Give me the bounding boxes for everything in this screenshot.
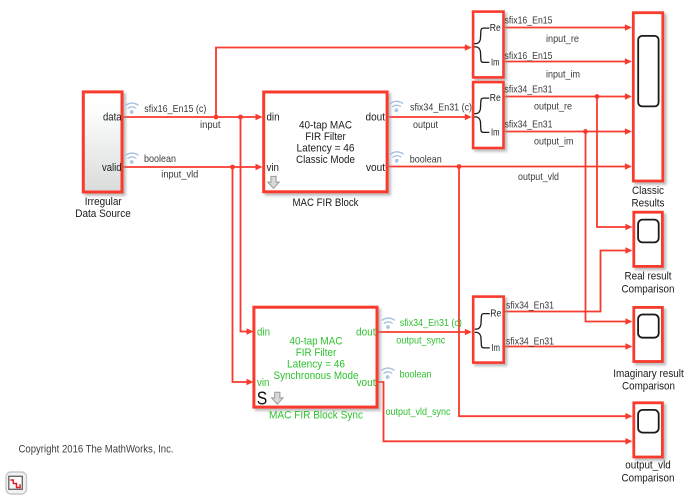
svg-text:output_vld_sync: output_vld_sync: [386, 406, 451, 418]
svg-text:Imaginary result: Imaginary result: [613, 368, 684, 380]
svg-text:input_re: input_re: [546, 33, 579, 45]
svg-text:S: S: [257, 387, 267, 409]
svg-text:Classic Mode: Classic Mode: [296, 154, 355, 166]
svg-text:sfix34_En31 (c): sfix34_En31 (c): [410, 102, 472, 114]
svg-text:Latency = 46: Latency = 46: [297, 143, 355, 155]
svg-text:Re: Re: [490, 93, 501, 104]
svg-text:vout: vout: [357, 377, 376, 389]
svg-text:Im: Im: [492, 343, 501, 354]
svg-text:Synchronous Mode: Synchronous Mode: [274, 370, 359, 382]
svg-text:Im: Im: [491, 127, 500, 138]
svg-text:boolean: boolean: [400, 369, 432, 381]
svg-text:data: data: [103, 112, 122, 124]
svg-text:Im: Im: [491, 58, 500, 69]
svg-text:Comparison: Comparison: [622, 284, 675, 296]
svg-text:dout: dout: [366, 112, 386, 124]
svg-text:sfix16_En15: sfix16_En15: [505, 50, 553, 62]
svg-text:Comparison: Comparison: [622, 473, 675, 485]
svg-text:Results: Results: [632, 198, 665, 210]
svg-text:sfix16_En15: sfix16_En15: [505, 15, 553, 27]
svg-text:output_vld: output_vld: [518, 171, 559, 183]
svg-text:FIR Filter: FIR Filter: [305, 131, 346, 143]
svg-text:Real result: Real result: [625, 271, 672, 283]
svg-text:sfix34_En31: sfix34_En31: [506, 300, 554, 312]
svg-text:output_sync: output_sync: [396, 335, 445, 347]
svg-text:FIR Filter: FIR Filter: [296, 347, 337, 359]
svg-text:vout: vout: [366, 162, 385, 174]
svg-text:MAC FIR Block: MAC FIR Block: [293, 197, 359, 209]
svg-text:40-tap MAC: 40-tap MAC: [299, 120, 352, 132]
svg-text:output_im: output_im: [534, 136, 574, 148]
svg-text:sfix34_En31 (c): sfix34_En31 (c): [400, 317, 462, 329]
svg-text:input_im: input_im: [546, 69, 580, 81]
svg-text:boolean: boolean: [144, 153, 176, 165]
svg-text:Irregular: Irregular: [85, 196, 122, 208]
svg-text:valid: valid: [102, 162, 122, 174]
svg-text:output_re: output_re: [534, 101, 572, 113]
svg-text:Latency = 46: Latency = 46: [287, 359, 345, 371]
svg-text:MAC FIR Block Sync: MAC FIR Block Sync: [269, 410, 363, 422]
svg-text:Classic: Classic: [632, 185, 664, 197]
svg-text:dout: dout: [356, 327, 376, 339]
svg-text:sfix34_En31: sfix34_En31: [505, 119, 553, 131]
svg-text:output_vld: output_vld: [625, 460, 671, 472]
svg-text:output: output: [413, 119, 438, 131]
svg-text:sfix34_En31: sfix34_En31: [506, 336, 554, 348]
svg-text:Re: Re: [490, 308, 501, 319]
svg-text:Copyright 2016 The MathWorks,: Copyright 2016 The MathWorks, Inc.: [19, 444, 174, 456]
svg-text:vin: vin: [257, 377, 270, 389]
svg-text:40-tap MAC: 40-tap MAC: [290, 336, 343, 348]
svg-text:vin: vin: [267, 162, 280, 174]
svg-text:input_vld: input_vld: [161, 169, 198, 181]
svg-text:Re: Re: [490, 23, 501, 34]
svg-text:Data Source: Data Source: [75, 208, 131, 220]
svg-text:din: din: [267, 112, 280, 124]
svg-text:boolean: boolean: [410, 154, 442, 166]
svg-text:sfix16_En15 (c): sfix16_En15 (c): [144, 103, 206, 115]
svg-text:din: din: [257, 327, 270, 339]
svg-text:Comparison: Comparison: [622, 381, 675, 393]
svg-text:sfix34_En31: sfix34_En31: [505, 84, 553, 96]
svg-text:input: input: [200, 119, 221, 131]
